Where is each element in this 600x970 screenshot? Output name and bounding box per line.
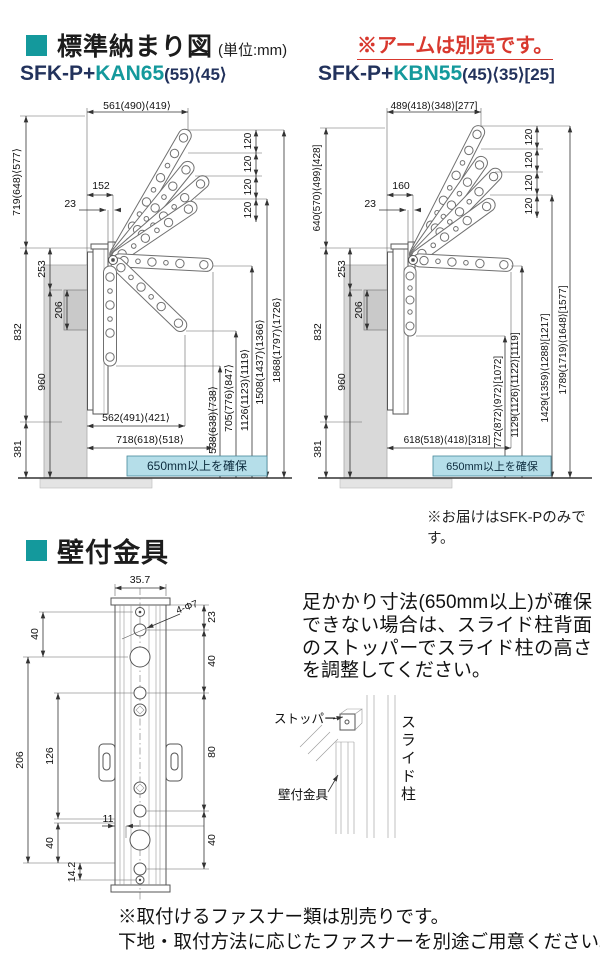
dim-left-top: 40 bbox=[29, 628, 41, 640]
diagram-kbn55: 489(418)⟨348⟩[277] 640(570)⟨499⟩[428] 16… bbox=[300, 100, 600, 510]
diagram-left-title: SFK-P+KAN65(55)⟨45⟩ bbox=[20, 62, 227, 86]
dim-height-to-top: 719(648)⟨577⟩ bbox=[11, 148, 23, 216]
slide-pole-label: スライド柱 bbox=[397, 714, 418, 809]
dim-pivot-gap: 23 bbox=[64, 198, 76, 210]
section-marker-icon bbox=[26, 540, 47, 561]
stopper-inset-drawing: ストッパー 壁付金具 bbox=[270, 692, 595, 840]
arm-positions bbox=[404, 123, 513, 336]
dim-pivot-offset: 152 bbox=[92, 180, 110, 192]
section-marker-icon bbox=[26, 35, 47, 56]
dim-arm-step: 120 bbox=[524, 197, 535, 214]
dim-arm-step: 120 bbox=[243, 155, 254, 172]
section1-header: 標準納まり図 (単位:mm) bbox=[26, 27, 287, 63]
adjustment-note: 足かかり寸法(650mm以上)が確保できない場合は、スライド柱背面のストッパーで… bbox=[302, 592, 592, 683]
title-prefix: SFK-P+ bbox=[20, 62, 95, 85]
dim-arm-step: 120 bbox=[524, 151, 535, 168]
dim-base: 381 bbox=[12, 440, 24, 458]
wall-bracket-label: 壁付金具 bbox=[278, 787, 329, 802]
dim-bottom-edge: 14.2 bbox=[66, 862, 78, 883]
footnote-2: 下地・取付方法に応じたファスナーを別途ご用意ください。 bbox=[118, 930, 600, 955]
dim-overall: 206 bbox=[14, 751, 26, 769]
stopper-label: ストッパー bbox=[274, 712, 337, 726]
dim-reach-outer: 618(518)⟨418⟩[318] bbox=[404, 435, 491, 446]
dim-level-tip-height: 1126(1123)⟨1119⟩ bbox=[239, 349, 251, 431]
dim-reach-outer: 718(618)⟨518⟩ bbox=[116, 434, 184, 446]
arm-sold-separately-note: ※アームは別売です。 bbox=[357, 29, 553, 60]
dim-raised-low-height: 1429(1359)⟨1288⟩[1217] bbox=[540, 313, 551, 422]
dim-top-width: 489(418)⟨348⟩[277] bbox=[391, 101, 478, 112]
dim-down-tip-height: 705(776)⟨847⟩ bbox=[223, 364, 235, 432]
arm-positions bbox=[104, 127, 214, 366]
section2-header: 壁付金具 bbox=[26, 531, 169, 570]
clearance-note: 650mm以上を確保 bbox=[446, 459, 538, 473]
dim-pivot-gap: 23 bbox=[364, 198, 376, 210]
dim-raised-low-height: 1508(1437)⟨1366⟩ bbox=[254, 319, 266, 404]
title-prefix: SFK-P+ bbox=[318, 62, 393, 85]
dim-bracket-to-pivot: 253 bbox=[336, 260, 348, 278]
diagram-right-title: SFK-P+KBN55(45)⟨35⟩[25] bbox=[318, 62, 555, 86]
dim-pitch-upper: 40 bbox=[206, 655, 218, 667]
dim-folded-height: 538(638)⟨738⟩ bbox=[207, 386, 219, 454]
dim-arm-step: 120 bbox=[524, 128, 535, 145]
footnotes: ※取付けるファスナー類は別売りです。 下地・取付方法に応じたファスナーを別途ご用… bbox=[118, 905, 600, 955]
dim-level-tip-height: 1129(1126)⟨1122⟩[1119] bbox=[510, 332, 521, 438]
title-model: KBN55 bbox=[393, 62, 462, 85]
page: 標準納まり図 (単位:mm) ※アームは別売です。 SFK-P+KAN65(55… bbox=[0, 0, 600, 970]
dim-arm-step: 120 bbox=[243, 201, 254, 218]
dim-upper-column: 832 bbox=[12, 323, 24, 341]
dim-pivot-offset: 160 bbox=[392, 180, 410, 192]
dim-base: 381 bbox=[312, 440, 324, 458]
dim-hole-spec: 4-Φ7 bbox=[175, 598, 200, 616]
dim-top-width: 561(490)⟨419⟩ bbox=[103, 100, 171, 112]
footnote-1: ※取付けるファスナー類は別売りです。 bbox=[118, 905, 600, 930]
dim-folded-height: 772(872)⟨972⟩[1072] bbox=[493, 356, 504, 449]
dim-pitch-middle: 80 bbox=[206, 746, 218, 758]
section1-title: 標準納まり図 bbox=[57, 27, 213, 63]
dim-side-offset: 11 bbox=[103, 813, 114, 825]
unit-note: (単位:mm) bbox=[218, 39, 287, 60]
dim-lower-column: 960 bbox=[336, 373, 348, 391]
dim-arm-step: 120 bbox=[524, 174, 535, 191]
delivery-note: ※お届けはSFK-Pのみです。 bbox=[427, 506, 600, 548]
section2-title: 壁付金具 bbox=[57, 531, 169, 570]
title-model: KAN65 bbox=[95, 62, 164, 85]
dim-raised-top-height: 1868(1797)⟨1726⟩ bbox=[271, 297, 283, 382]
dim-pitch-lower: 40 bbox=[206, 834, 218, 846]
dim-raised-top-height: 1789(1719)⟨1648⟩[1577] bbox=[558, 285, 569, 394]
wall-and-column bbox=[340, 242, 452, 488]
dim-upper-column: 832 bbox=[312, 323, 324, 341]
dim-bracket-to-pivot: 253 bbox=[36, 260, 48, 278]
dim-reach-inner: 562(491)⟨421⟩ bbox=[102, 412, 170, 424]
diagram-kan65: 561(490)⟨419⟩ 719(648)⟨577⟩ 152 23 253 8… bbox=[0, 100, 300, 510]
title-sizes: (55)⟨45⟩ bbox=[164, 65, 226, 84]
dim-arm-step: 120 bbox=[243, 132, 254, 149]
dim-bracket-height: 206 bbox=[53, 301, 65, 319]
dim-height-to-top: 640(570)⟨499⟩[428] bbox=[312, 144, 323, 231]
title-sizes: (45)⟨35⟩[25] bbox=[462, 65, 555, 84]
bracket-profile bbox=[99, 588, 182, 902]
dim-lower-column: 960 bbox=[36, 373, 48, 391]
dim-left-bottom: 40 bbox=[44, 837, 56, 849]
clearance-note: 650mm以上を確保 bbox=[147, 458, 247, 473]
dim-width: 35.7 bbox=[130, 574, 151, 586]
dim-arm-step: 120 bbox=[243, 178, 254, 195]
dim-inner: 126 bbox=[44, 747, 56, 765]
inset-callouts: ストッパー 壁付金具 bbox=[274, 712, 343, 802]
dim-top-to-hole: 23 bbox=[206, 611, 218, 623]
dim-bracket-height: 206 bbox=[353, 301, 365, 319]
